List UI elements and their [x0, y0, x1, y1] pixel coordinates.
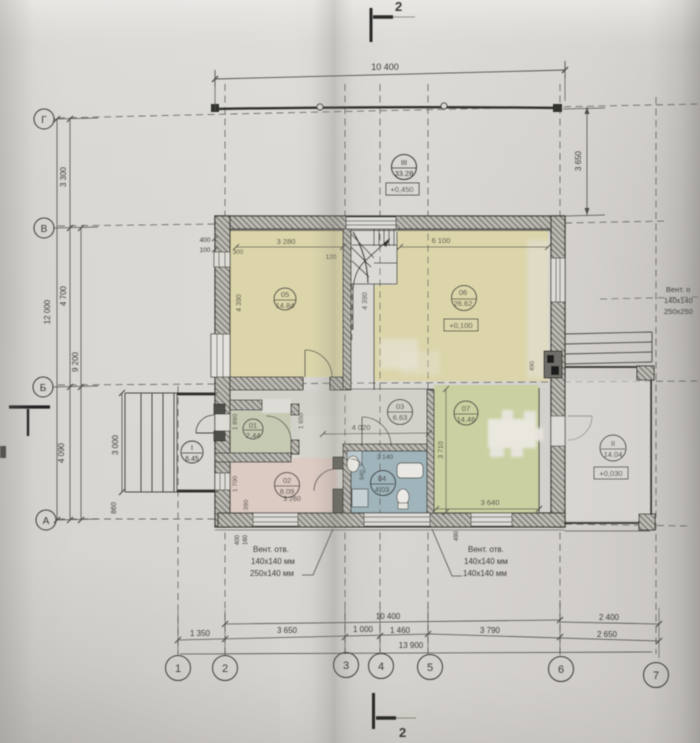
svg-text:2 650: 2 650 [597, 630, 618, 639]
svg-text:4 020: 4 020 [352, 423, 371, 432]
svg-text:1 460: 1 460 [390, 626, 411, 635]
svg-text:4 700: 4 700 [59, 285, 68, 306]
svg-text:6.63: 6.63 [393, 413, 408, 422]
svg-text:4 390: 4 390 [362, 292, 369, 310]
svg-text:8.09: 8.09 [280, 487, 295, 496]
svg-text:Г: Г [41, 115, 47, 126]
svg-text:Б: Б [40, 383, 47, 394]
svg-text:3 000: 3 000 [111, 434, 120, 455]
svg-text:390: 390 [243, 499, 250, 510]
svg-text:I: I [191, 445, 193, 452]
svg-text:+0,030: +0,030 [599, 469, 622, 478]
svg-text:3 650: 3 650 [277, 626, 298, 635]
svg-text:400: 400 [200, 237, 211, 244]
svg-text:2: 2 [399, 725, 406, 740]
svg-text:300: 300 [233, 249, 244, 256]
svg-text:Вент. отв.: Вент. отв. [253, 545, 289, 554]
svg-text:2.44: 2.44 [246, 431, 261, 440]
svg-text:1 700: 1 700 [232, 475, 239, 492]
svg-text:160: 160 [243, 534, 249, 545]
svg-text:3 650: 3 650 [574, 150, 583, 171]
svg-text:1 650: 1 650 [298, 412, 305, 429]
svg-text:10 400: 10 400 [371, 62, 399, 72]
svg-text:14.46: 14.46 [457, 415, 476, 424]
svg-text:26.62: 26.62 [454, 299, 473, 308]
svg-text:100: 100 [200, 247, 211, 254]
svg-text:3 280: 3 280 [277, 237, 296, 246]
svg-text:В: В [41, 224, 48, 235]
svg-text:07: 07 [462, 404, 470, 413]
svg-text:14.04: 14.04 [604, 450, 623, 459]
svg-text:02: 02 [283, 476, 291, 485]
svg-text:33.28: 33.28 [395, 169, 414, 178]
svg-text:+0,450: +0,450 [390, 185, 413, 194]
svg-text:5: 5 [427, 662, 433, 674]
svg-text:13 900: 13 900 [399, 641, 424, 650]
svg-text:940: 940 [360, 469, 366, 480]
svg-text:4: 4 [378, 661, 384, 673]
svg-text:2 140: 2 140 [377, 454, 394, 461]
svg-text:3 300: 3 300 [59, 166, 68, 187]
svg-text:А: А [43, 516, 50, 527]
svg-text:12 000: 12 000 [43, 299, 52, 324]
svg-text:II: II [611, 439, 615, 448]
svg-text:III: III [401, 158, 407, 167]
svg-text:01: 01 [249, 421, 257, 430]
svg-text:10 400: 10 400 [376, 612, 401, 621]
svg-text:4 390: 4 390 [236, 294, 243, 312]
svg-text:1 890: 1 890 [232, 413, 239, 430]
svg-text:3 710: 3 710 [438, 441, 445, 459]
svg-text:05: 05 [281, 290, 289, 299]
svg-text:14.84: 14.84 [276, 301, 295, 310]
svg-text:490: 490 [454, 530, 460, 541]
svg-text:9 200: 9 200 [71, 351, 80, 372]
svg-text:6 100: 6 100 [432, 236, 451, 245]
svg-text:03: 03 [396, 402, 404, 411]
svg-text:3 790: 3 790 [480, 626, 501, 635]
svg-text:6: 6 [558, 664, 564, 676]
svg-text:2: 2 [395, 0, 402, 14]
svg-text:Вент. отв.: Вент. отв. [468, 545, 504, 554]
svg-text:860: 860 [111, 502, 118, 514]
svg-text:3 640: 3 640 [481, 498, 500, 507]
svg-text:2 400: 2 400 [599, 613, 620, 622]
svg-text:140х140 мм: 140х140 мм [464, 557, 508, 566]
svg-text:6.45: 6.45 [185, 456, 199, 463]
svg-text:4.03: 4.03 [375, 485, 390, 494]
svg-text:490: 490 [530, 360, 536, 371]
svg-text:4 090: 4 090 [57, 442, 66, 463]
svg-text:1 000: 1 000 [353, 625, 374, 634]
svg-text:400: 400 [235, 534, 241, 545]
svg-text:+0,100: +0,100 [449, 321, 472, 330]
svg-text:06: 06 [459, 288, 467, 297]
svg-text:04: 04 [378, 474, 386, 483]
svg-text:140х140 мм: 140х140 мм [463, 569, 507, 578]
